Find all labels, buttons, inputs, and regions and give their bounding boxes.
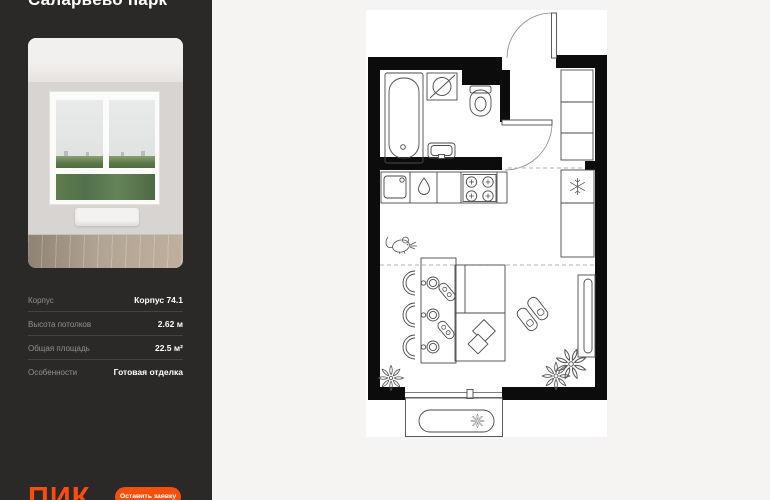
spec-label: Особенности — [28, 368, 77, 377]
cta-button[interactable]: Оставить заявку — [115, 487, 181, 500]
spec-list: Корпус Корпус 74.1 Высота потолков 2.62 … — [28, 288, 183, 383]
pik-logo: ПИК — [28, 484, 90, 500]
spec-row-ceiling-height: Высота потолков 2.62 м — [28, 312, 183, 336]
photo-floor — [28, 234, 183, 268]
spec-row-total-area: Общая площадь 22.5 м² — [28, 336, 183, 360]
photo-ceiling — [28, 38, 183, 82]
ad-banner: Саларьево парк Корпус — [0, 0, 770, 500]
sidebar: Саларьево парк Корпус — [0, 0, 212, 500]
floorplan — [366, 10, 607, 437]
photo-window — [49, 91, 160, 205]
spec-value: 2.62 м — [158, 319, 183, 329]
spec-label: Общая площадь — [28, 344, 90, 353]
spec-row-features: Особенности Готовая отделка — [28, 360, 183, 383]
spec-row-korpus: Корпус Корпус 74.1 — [28, 288, 183, 312]
window-pane-bottom — [56, 174, 155, 200]
window-pane-right — [109, 100, 155, 168]
spec-value: 22.5 м² — [155, 343, 183, 353]
apartment-photo — [28, 38, 183, 268]
project-title: Саларьево парк — [28, 0, 167, 10]
spec-value: Готовая отделка — [114, 367, 183, 377]
photo-radiator — [75, 208, 139, 226]
spec-label: Корпус — [28, 296, 54, 305]
spec-label: Высота потолков — [28, 320, 91, 329]
window-pane-left — [56, 100, 103, 168]
spec-value: Корпус 74.1 — [134, 295, 183, 305]
